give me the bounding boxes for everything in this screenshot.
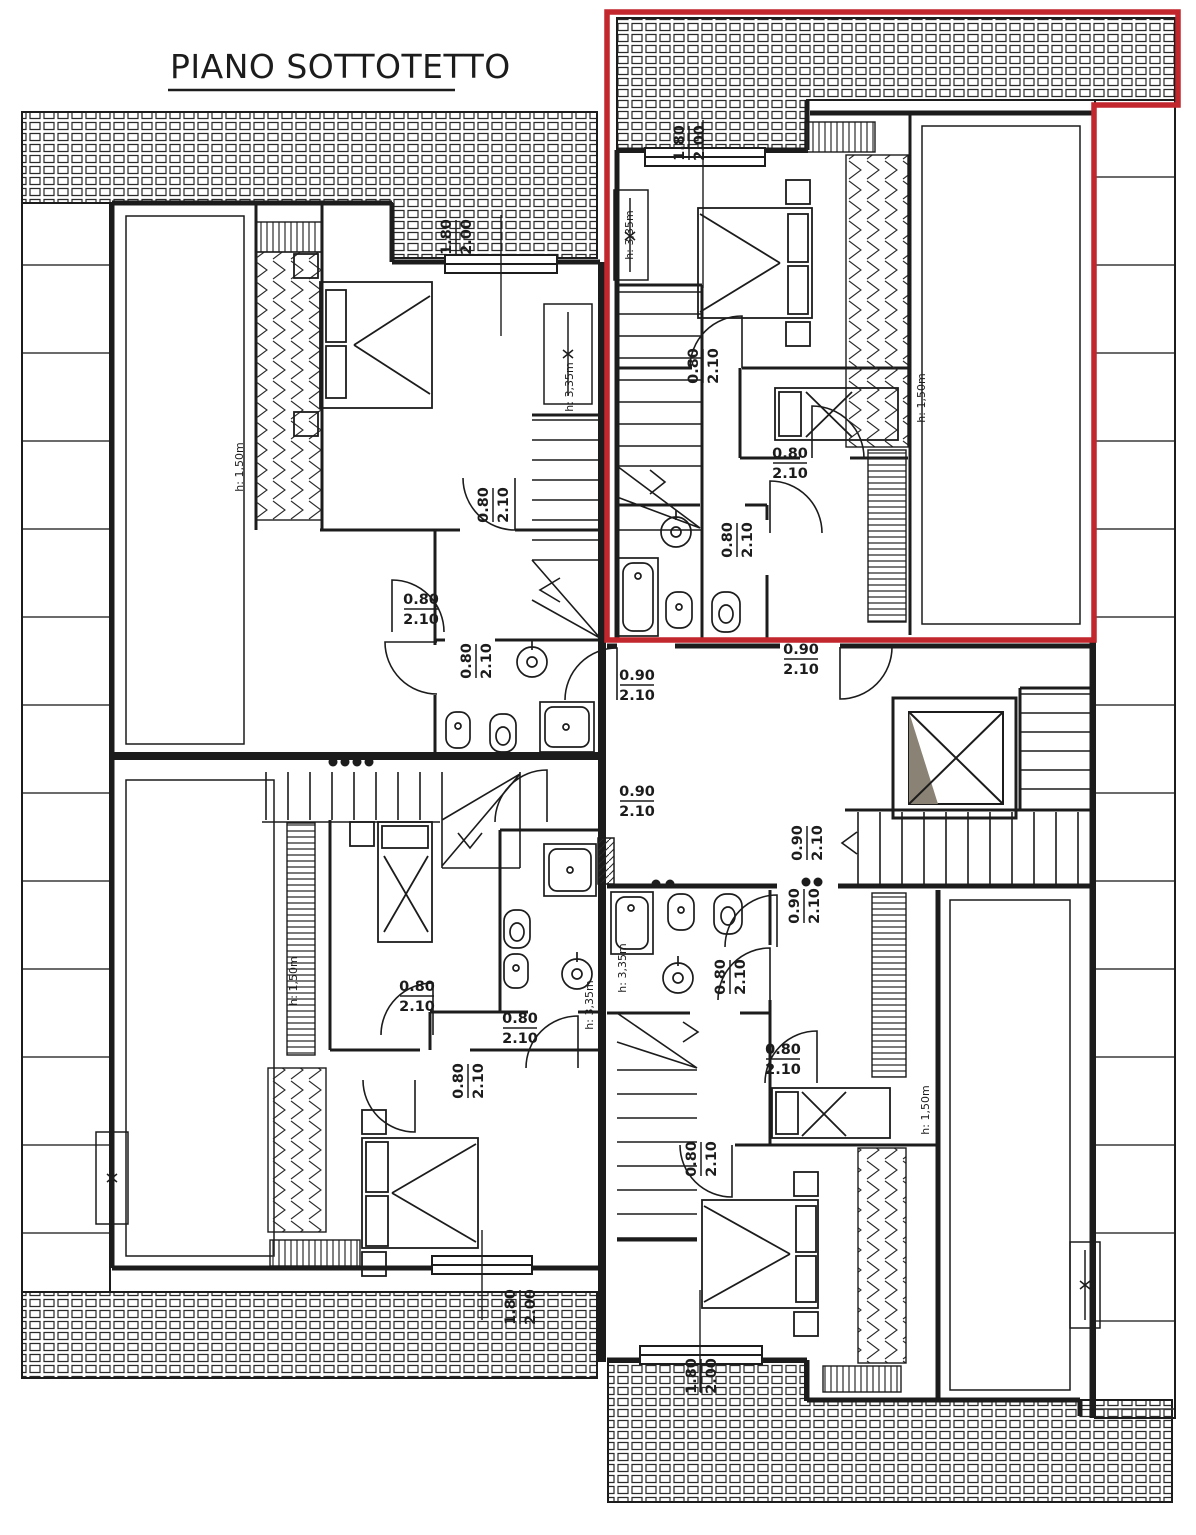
stairs-top-right-unit [617, 292, 702, 530]
svg-text:2.10: 2.10 [733, 959, 749, 995]
svg-text:0.80: 0.80 [772, 446, 808, 462]
dimension-label: 0.802.10 [686, 348, 722, 384]
svg-text:0.90: 0.90 [619, 668, 655, 684]
svg-text:2.10: 2.10 [740, 522, 756, 558]
bidet [504, 954, 528, 988]
dimension-label: 0.802.10 [476, 487, 512, 523]
height-label: h: 1,50m [287, 956, 300, 1005]
svg-text:1.80: 1.80 [684, 1358, 700, 1394]
svg-text:1.80: 1.80 [672, 125, 688, 161]
svg-text:2.10: 2.10 [704, 1141, 720, 1177]
floor-plan-sheet: 1.802.001.802.001.802.001.802.000.802.10… [0, 0, 1196, 1535]
height-labels: h: 1,50mh: 3,35mh: 3,35mh: 1,50mh: 1,50m… [233, 210, 932, 1134]
height-label: h: 1,50m [915, 373, 928, 422]
svg-text:h: 1,50m: h: 1,50m [233, 442, 246, 491]
closet-comb [805, 122, 875, 152]
roof-band-right [1095, 100, 1175, 1418]
page-title: PIANO SOTTOTETTO [170, 47, 511, 86]
closet-comb [872, 893, 906, 1077]
svg-text:0.80: 0.80 [765, 1042, 801, 1058]
stairs-landing [842, 694, 1092, 886]
bidet [446, 712, 470, 748]
svg-text:h: 3,35m: h: 3,35m [583, 980, 596, 1029]
double-bed [362, 1110, 478, 1276]
height-label: h: 1,50m [919, 1085, 932, 1134]
svg-text:2.00: 2.00 [523, 1289, 539, 1325]
svg-text:2.10: 2.10 [783, 662, 819, 678]
svg-text:h: 3,35m: h: 3,35m [623, 210, 636, 259]
sink [517, 640, 547, 677]
height-label: h: 3,35m [616, 943, 629, 992]
dimension-label: 0.802.10 [399, 979, 435, 1015]
closet-comb [256, 222, 322, 252]
svg-text:0.80: 0.80 [459, 643, 475, 679]
dimension-label: 0.902.10 [790, 825, 826, 861]
svg-text:0.80: 0.80 [502, 1011, 538, 1027]
height-label: h: 3,35m [583, 980, 596, 1029]
height-label: h: 3,35m [563, 362, 576, 411]
door-swing [840, 647, 892, 699]
party-walls [112, 262, 602, 1362]
svg-text:2.10: 2.10 [772, 466, 808, 482]
svg-text:2.10: 2.10 [619, 688, 655, 704]
toilet [712, 592, 740, 632]
svg-text:0.80: 0.80 [403, 592, 439, 608]
double-bed [698, 180, 812, 346]
svg-text:2.10: 2.10 [479, 643, 495, 679]
door-swing [770, 481, 822, 533]
svg-text:2.10: 2.10 [810, 825, 826, 861]
dimension-label: 0.802.10 [684, 1141, 720, 1177]
closet-zigzag [858, 1148, 906, 1363]
door-swing [565, 648, 617, 700]
svg-text:2.00: 2.00 [459, 219, 475, 255]
door-swing [363, 1080, 415, 1132]
stairs-bottom-right-unit [617, 1013, 698, 1238]
svg-text:2.00: 2.00 [704, 1358, 720, 1394]
svg-text:2.10: 2.10 [706, 348, 722, 384]
svg-text:0.80: 0.80 [476, 487, 492, 523]
toilet [490, 714, 516, 752]
dimension-label: 0.802.10 [772, 446, 808, 482]
svg-text:0.80: 0.80 [713, 959, 729, 995]
toilet [504, 910, 530, 948]
svg-text:0.80: 0.80 [451, 1063, 467, 1099]
closet-zigzag [256, 252, 322, 520]
wall-dots [329, 758, 823, 889]
svg-text:h: 3,35m: h: 3,35m [616, 943, 629, 992]
dimension-label: 0.902.10 [783, 642, 819, 678]
svg-text:2.10: 2.10 [619, 804, 655, 820]
svg-text:0.80: 0.80 [399, 979, 435, 995]
double-bed [702, 1172, 818, 1336]
svg-text:0.80: 0.80 [720, 522, 736, 558]
closet-comb [270, 1240, 360, 1266]
svg-text:0.80: 0.80 [684, 1141, 700, 1177]
dimension-label: 0.802.10 [720, 522, 756, 558]
svg-text:0.80: 0.80 [686, 348, 702, 384]
svg-text:2.10: 2.10 [399, 999, 435, 1015]
bidet [668, 894, 694, 930]
dimension-label: 0.902.10 [619, 784, 655, 820]
roof-band-left [22, 203, 110, 1292]
floor-plan-drawing: 1.802.001.802.001.802.001.802.000.802.10… [0, 0, 1196, 1535]
single-bed [350, 822, 432, 942]
svg-text:2.10: 2.10 [502, 1031, 538, 1047]
svg-text:0.90: 0.90 [790, 825, 806, 861]
height-label: h: 3,35m [623, 210, 636, 259]
shower [544, 844, 596, 896]
closet-comb [823, 1366, 901, 1392]
svg-text:2.10: 2.10 [807, 888, 823, 924]
sink [663, 956, 693, 993]
dimension-label: 0.802.10 [459, 643, 495, 679]
svg-text:0.90: 0.90 [619, 784, 655, 800]
svg-text:2.10: 2.10 [496, 487, 512, 523]
plan-title: PIANO SOTTOTETTO [168, 47, 511, 90]
height-label: h: 1,50m [233, 442, 246, 491]
door-swing [495, 770, 547, 822]
svg-text:2.10: 2.10 [403, 612, 439, 628]
svg-text:0.90: 0.90 [783, 642, 819, 658]
svg-text:0.90: 0.90 [787, 888, 803, 924]
dimension-label: 0.802.10 [502, 1011, 538, 1047]
bidet [666, 592, 692, 628]
bathroom-fixtures [446, 510, 742, 993]
dimension-label: 0.902.10 [619, 668, 655, 704]
svg-text:1.80: 1.80 [439, 219, 455, 255]
elevator [893, 698, 1016, 818]
svg-text:2.10: 2.10 [471, 1063, 487, 1099]
dimension-label: 0.802.10 [451, 1063, 487, 1099]
svg-text:2.00: 2.00 [692, 125, 708, 161]
closet-comb [868, 450, 906, 622]
bathtub [618, 558, 658, 636]
single-bed [772, 1088, 890, 1138]
svg-text:h: 1,50m: h: 1,50m [287, 956, 300, 1005]
closet-comb [287, 823, 315, 1055]
closet-zigzag [268, 1068, 326, 1232]
svg-text:h: 1,50m: h: 1,50m [919, 1085, 932, 1134]
dimension-label: 0.902.10 [787, 888, 823, 924]
svg-text:2.10: 2.10 [765, 1062, 801, 1078]
svg-text:h: 3,35m: h: 3,35m [563, 362, 576, 411]
door-swing [385, 642, 437, 694]
svg-text:h: 1,50m: h: 1,50m [915, 373, 928, 422]
shower [540, 702, 594, 752]
svg-text:1.80: 1.80 [503, 1289, 519, 1325]
